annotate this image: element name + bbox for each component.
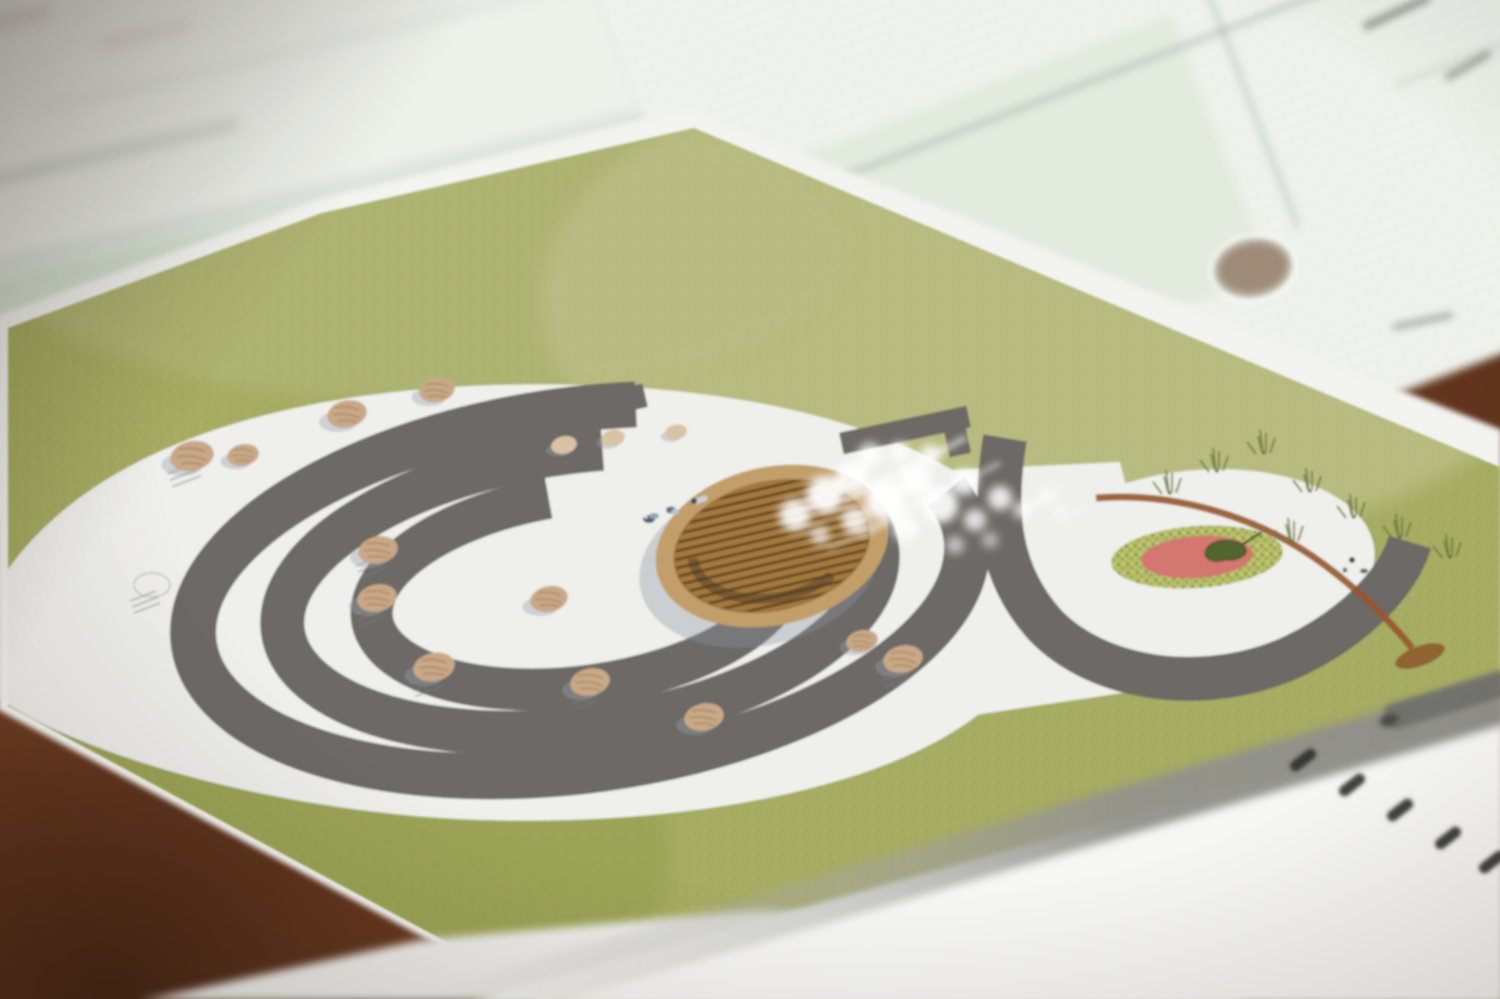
grass-base-dot [1398, 535, 1401, 538]
grass-base-dot [1215, 469, 1218, 472]
blossom-bokeh-dot [890, 442, 910, 462]
blossom-bokeh-dot [858, 443, 882, 467]
blossom-bokeh-dot [964, 509, 986, 531]
grass-base-dot [1448, 555, 1451, 558]
plan-print-photo [0, 0, 1500, 999]
grass-base-dot [1290, 539, 1293, 542]
blossom-bokeh-dot [988, 486, 1012, 510]
blossom-bokeh-dot [779, 499, 811, 531]
blossom-bokeh-dot [1053, 503, 1067, 517]
grass-base-dot [1168, 491, 1171, 494]
blossom-bokeh-dot [946, 536, 964, 554]
blossom-bokeh-dot [982, 532, 998, 548]
blossom-bokeh-dot [810, 525, 830, 545]
grass-base-dot [1352, 515, 1355, 518]
photo-canvas [0, 0, 1500, 999]
grass-base-dot [1308, 489, 1311, 492]
grass-base-dot [1262, 451, 1265, 454]
